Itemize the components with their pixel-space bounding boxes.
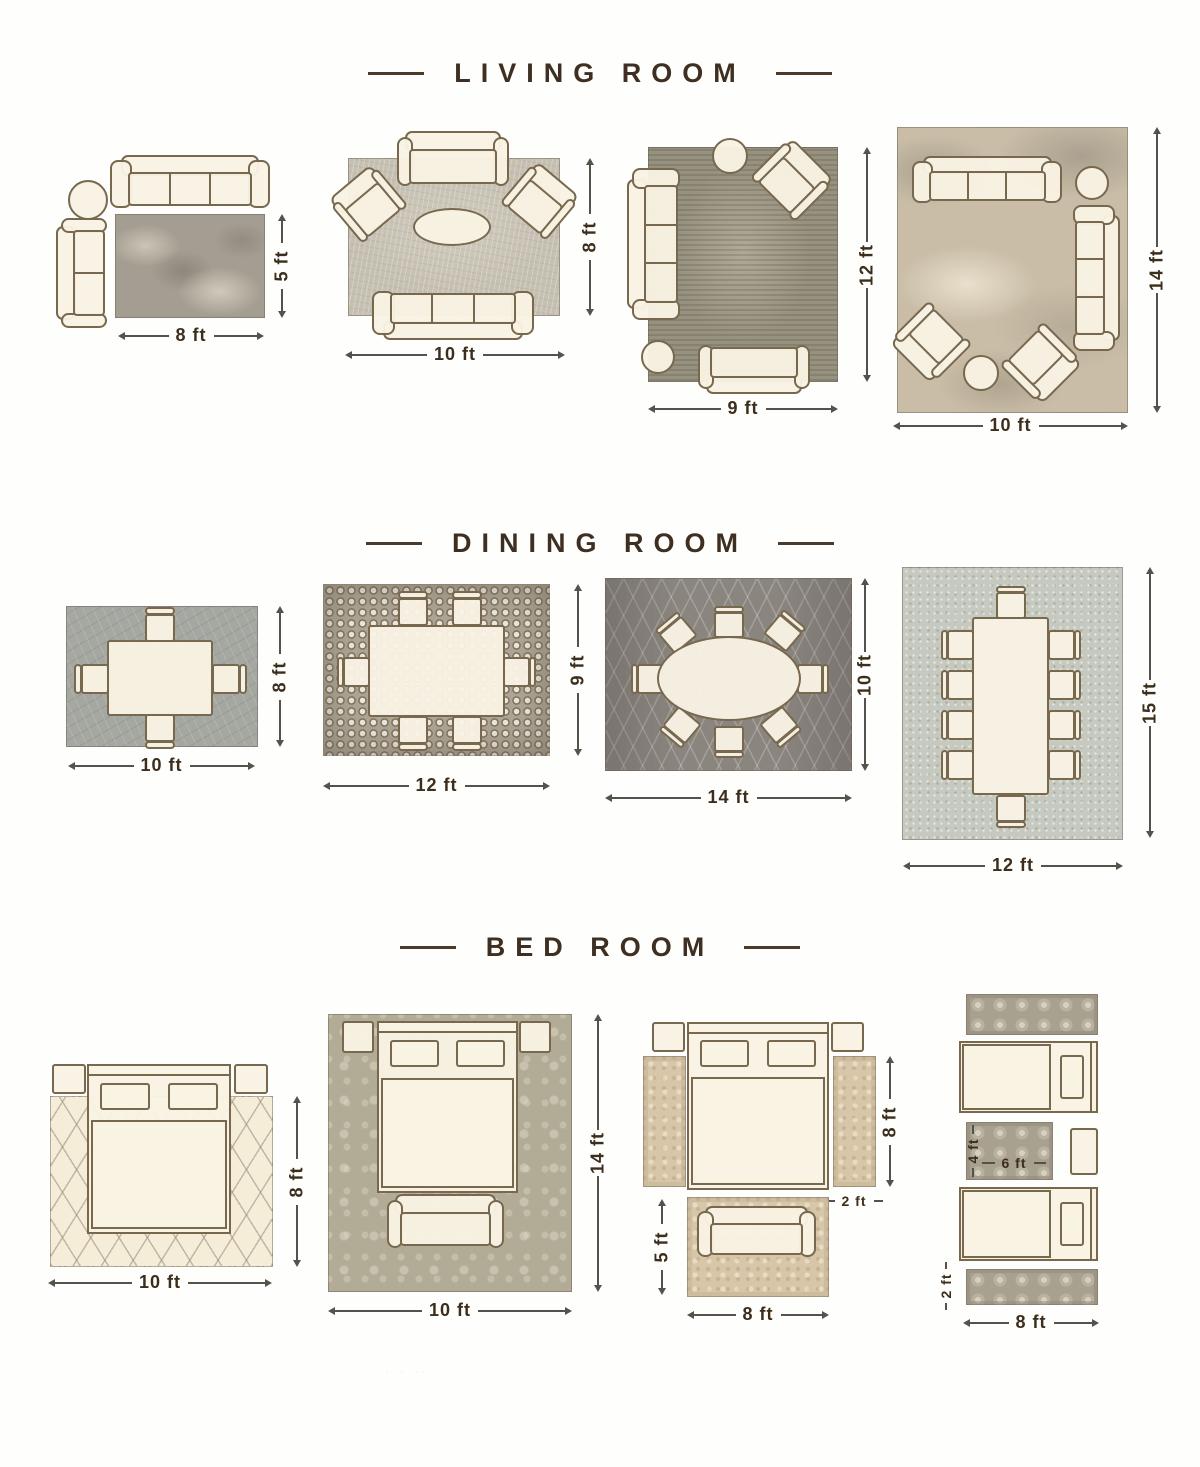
rug-height-dimension: 15 ft xyxy=(1140,567,1160,838)
rug-width-dimension: 8 ft xyxy=(118,325,264,346)
foot-rug-width-dimension: 8 ft xyxy=(687,1304,829,1325)
pillow xyxy=(767,1040,817,1067)
dimension-label: 10 ft xyxy=(134,755,190,776)
bed xyxy=(377,1021,518,1193)
dimension-label: 14 ft xyxy=(588,1132,609,1174)
headboard xyxy=(1090,1041,1098,1113)
arrow-left-icon xyxy=(903,862,910,870)
title-dash-right xyxy=(776,72,832,75)
arrow-left-icon xyxy=(345,351,352,359)
rug-height-dimension: 14 ft xyxy=(1147,127,1167,413)
side-table xyxy=(963,355,999,391)
side-table xyxy=(68,180,108,220)
loveseat xyxy=(698,344,810,394)
sofa xyxy=(912,156,1062,204)
pillow xyxy=(168,1083,218,1110)
bed-cover xyxy=(691,1077,825,1185)
dining-chair xyxy=(947,630,974,660)
dining-chair xyxy=(714,726,744,752)
arrow-right-icon xyxy=(822,1311,829,1319)
dining-chair xyxy=(947,710,974,740)
arrow-left-icon xyxy=(687,1311,694,1319)
dining-chair xyxy=(996,592,1026,619)
nightstand xyxy=(1070,1128,1098,1175)
pillow xyxy=(390,1040,439,1068)
side-table xyxy=(1075,166,1109,200)
mid-rug-width-dimension: 6 ft xyxy=(982,1155,1046,1171)
bed-cover xyxy=(962,1044,1051,1110)
living-layout-10x8: 8 ft 10 ft xyxy=(330,120,605,370)
arrow-up-icon xyxy=(658,1199,666,1206)
sofa-cushions xyxy=(128,172,253,206)
dining-layout-14x10: 10 ft 14 ft xyxy=(595,565,885,810)
bed-cover xyxy=(381,1078,514,1188)
dining-chair xyxy=(343,657,370,687)
arrow-left-icon xyxy=(48,1279,55,1287)
dimension-label: 12 ft xyxy=(985,855,1041,876)
arrow-right-icon xyxy=(558,351,565,359)
dining-chair xyxy=(996,795,1026,822)
sofa-cushions xyxy=(1075,221,1105,335)
arrow-down-icon xyxy=(293,1260,301,1267)
rug-width-dimension: 10 ft xyxy=(68,755,255,776)
headboard xyxy=(87,1064,231,1076)
bed-height-dimension: 8 ft xyxy=(880,1056,900,1187)
runner-height-dimension: 2 ft xyxy=(936,1262,956,1310)
dimension-label: 10 ft xyxy=(855,653,876,695)
arrow-left-icon xyxy=(118,332,125,340)
dimension-label: 14 ft xyxy=(1147,249,1168,291)
title-dash-right xyxy=(778,542,834,545)
arrow-down-icon xyxy=(861,764,869,771)
runner-rug xyxy=(966,1269,1098,1305)
rug-width-dimension: 9 ft xyxy=(648,398,838,419)
arrow-left-icon xyxy=(68,762,75,770)
dimension-label: 10 ft xyxy=(427,344,483,365)
pillow xyxy=(100,1083,150,1110)
rug-height-dimension: 8 ft xyxy=(287,1096,307,1267)
arrow-down-icon xyxy=(574,749,582,756)
rug-size-guide: LIVING ROOM 5 ft 8 ft xyxy=(0,0,1200,1467)
dining-chair xyxy=(1048,630,1075,660)
rug-height-dimension: 8 ft xyxy=(270,606,290,747)
dimension-label: 8 ft xyxy=(580,222,601,253)
twin-bed xyxy=(959,1187,1098,1261)
arrow-up-icon xyxy=(861,578,869,585)
dimension-label: 4 ft xyxy=(965,1139,981,1164)
dimension-label: 8 ft xyxy=(1009,1312,1054,1333)
sofa xyxy=(110,155,270,209)
arrow-down-icon xyxy=(658,1288,666,1295)
arrow-down-icon xyxy=(594,1285,602,1292)
dimension-label: 12 ft xyxy=(857,243,878,285)
living-layout-8x5: 5 ft 8 ft xyxy=(40,140,300,370)
arrow-right-icon xyxy=(831,405,838,413)
nightstand xyxy=(342,1021,374,1053)
dimension-label: 5 ft xyxy=(652,1232,673,1263)
loveseat xyxy=(397,131,509,187)
sofa-cushions xyxy=(644,185,678,304)
section-title-living-room: LIVING ROOM xyxy=(0,58,1200,89)
dining-chair xyxy=(145,614,175,642)
headboard xyxy=(1090,1187,1098,1261)
dining-chair xyxy=(947,670,974,700)
bed-cover xyxy=(91,1120,226,1229)
dining-chair xyxy=(1048,710,1075,740)
arrow-down-icon xyxy=(586,309,594,316)
dining-layout-12x9: 9 ft 12 ft xyxy=(315,575,595,805)
arrow-up-icon xyxy=(574,584,582,591)
watermark-dots: · · ·· xyxy=(385,1366,430,1378)
arrow-up-icon xyxy=(594,1014,602,1021)
bed-layout-10x14: 14 ft 10 ft xyxy=(320,1000,610,1325)
dimension-label: 6 ft xyxy=(995,1155,1034,1171)
arrow-down-icon xyxy=(863,375,871,382)
dimension-label: 10 ft xyxy=(983,415,1039,436)
section-title-bed-room: BED ROOM xyxy=(0,932,1200,963)
arrow-up-icon xyxy=(863,147,871,154)
dimension-label: 8 ft xyxy=(736,1304,781,1325)
arrow-up-icon xyxy=(278,214,286,221)
rug xyxy=(115,214,265,318)
runner-width-dimension: 2 ft xyxy=(825,1193,883,1209)
arrow-left-icon xyxy=(328,1307,335,1315)
arrow-right-icon xyxy=(543,782,550,790)
dining-chair xyxy=(452,598,482,626)
pillow xyxy=(700,1040,750,1067)
dimension-label: 15 ft xyxy=(1140,681,1161,723)
arrow-right-icon xyxy=(1092,1319,1099,1327)
runner-rug xyxy=(643,1056,686,1187)
section-title-text: LIVING ROOM xyxy=(454,58,746,89)
section-title-text: DINING ROOM xyxy=(452,528,748,559)
coffee-table xyxy=(413,208,491,246)
dining-table xyxy=(368,625,505,717)
arrow-right-icon xyxy=(565,1307,572,1315)
rug-width-dimension: 10 ft xyxy=(345,344,565,365)
dining-chair xyxy=(1048,750,1075,780)
arrow-up-icon xyxy=(1153,127,1161,134)
dining-chair xyxy=(947,750,974,780)
runner-rug xyxy=(966,994,1098,1035)
arrow-left-icon xyxy=(893,422,900,430)
sofa xyxy=(1072,205,1120,351)
arrow-up-icon xyxy=(586,158,594,165)
living-layout-9x12: 12 ft 9 ft xyxy=(615,135,885,425)
runner-rug xyxy=(833,1056,876,1187)
loveseat xyxy=(56,218,108,328)
rug-height-dimension: 9 ft xyxy=(568,584,588,756)
arrow-left-icon xyxy=(963,1319,970,1327)
sofa xyxy=(627,168,681,320)
arrow-right-icon xyxy=(248,762,255,770)
title-dash-left xyxy=(366,542,422,545)
arrow-right-icon xyxy=(265,1279,272,1287)
foot-rug-height-dimension: 5 ft xyxy=(652,1199,672,1295)
dining-layout-12x15: 15 ft 12 ft xyxy=(895,555,1165,875)
arrow-right-icon xyxy=(257,332,264,340)
title-dash-right xyxy=(744,946,800,949)
dimension-label: 8 ft xyxy=(270,661,291,692)
dining-table xyxy=(657,636,801,721)
rug-width-dimension: 14 ft xyxy=(605,787,852,808)
arrow-down-icon xyxy=(276,740,284,747)
title-dash-left xyxy=(400,946,456,949)
dimension-label: 12 ft xyxy=(409,775,465,796)
dining-chair xyxy=(398,598,428,626)
twin-bed xyxy=(959,1041,1098,1113)
rug-width-dimension: 10 ft xyxy=(328,1300,572,1321)
dimension-label: 9 ft xyxy=(568,655,589,686)
dimension-label: 14 ft xyxy=(701,787,757,808)
dimension-label: 2 ft xyxy=(938,1274,954,1299)
pillow xyxy=(456,1040,505,1068)
rug-height-dimension: 5 ft xyxy=(272,214,292,318)
pillow xyxy=(1060,1055,1084,1098)
nightstand xyxy=(831,1022,864,1052)
rug-width-dimension: 10 ft xyxy=(893,415,1128,436)
side-table xyxy=(641,340,675,374)
bed-layout-twin-runners: 4 ft 6 ft 2 ft 8 ft xyxy=(930,985,1185,1335)
arrow-right-icon xyxy=(845,794,852,802)
arrow-down-icon xyxy=(1153,406,1161,413)
section-title-text: BED ROOM xyxy=(486,932,715,963)
arrow-down-icon xyxy=(278,311,286,318)
dining-chair xyxy=(212,664,240,694)
dining-table xyxy=(107,640,213,716)
nightstand xyxy=(519,1021,551,1053)
sofa-cushions xyxy=(400,1212,491,1246)
headboard xyxy=(687,1022,829,1034)
rug-height-dimension: 12 ft xyxy=(857,147,877,382)
living-layout-10x14: 14 ft 10 ft xyxy=(885,110,1185,445)
runner-width-dimension: 8 ft xyxy=(963,1312,1099,1333)
arrow-left-icon xyxy=(323,782,330,790)
dining-chair xyxy=(452,716,482,744)
dining-chair xyxy=(145,714,175,742)
rug-width-dimension: 12 ft xyxy=(323,775,550,796)
arrow-left-icon xyxy=(605,794,612,802)
dimension-label: 8 ft xyxy=(880,1106,901,1137)
sofa-cushions xyxy=(929,171,1046,201)
dining-chair xyxy=(503,657,530,687)
bed-layout-10x8: 8 ft 10 ft xyxy=(35,1050,310,1300)
arrow-down-icon xyxy=(886,1180,894,1187)
nightstand xyxy=(234,1064,268,1094)
dining-layout-10x8: 8 ft 10 ft xyxy=(55,595,300,785)
pillow xyxy=(1060,1202,1084,1246)
rug-height-dimension: 10 ft xyxy=(855,578,875,771)
dimension-label: 10 ft xyxy=(132,1272,188,1293)
arrow-up-icon xyxy=(276,606,284,613)
arrow-right-icon xyxy=(1121,422,1128,430)
headboard xyxy=(377,1021,518,1033)
dimension-label: 9 ft xyxy=(721,398,766,419)
bed xyxy=(687,1022,829,1190)
nightstand xyxy=(652,1022,685,1052)
title-dash-left xyxy=(368,72,424,75)
dining-chair xyxy=(714,612,744,638)
sofa-cushions xyxy=(710,347,797,378)
sofa-cushions xyxy=(710,1223,803,1255)
dimension-label: 10 ft xyxy=(422,1300,478,1321)
arrow-left-icon xyxy=(648,405,655,413)
dimension-label: 8 ft xyxy=(169,325,214,346)
sofa xyxy=(372,290,534,340)
sofa-cushions xyxy=(73,230,105,316)
dining-table xyxy=(972,617,1049,795)
arrow-right-icon xyxy=(1116,862,1123,870)
sofa-cushions xyxy=(390,293,516,324)
arrow-up-icon xyxy=(1146,567,1154,574)
dimension-label: 2 ft xyxy=(835,1193,874,1209)
rug-width-dimension: 10 ft xyxy=(48,1272,272,1293)
arrow-down-icon xyxy=(1146,831,1154,838)
dining-chair xyxy=(81,664,109,694)
rug-height-dimension: 14 ft xyxy=(588,1014,608,1292)
sofa-cushions xyxy=(409,149,496,184)
dimension-label: 8 ft xyxy=(287,1166,308,1197)
rug-width-dimension: 12 ft xyxy=(903,855,1123,876)
rug-height-dimension: 8 ft xyxy=(580,158,600,316)
arrow-up-icon xyxy=(293,1096,301,1103)
bed-layout-runners: 8 ft 2 ft 5 ft 8 ft xyxy=(640,1010,905,1325)
bench xyxy=(387,1194,504,1249)
nightstand xyxy=(52,1064,86,1094)
arrow-up-icon xyxy=(886,1056,894,1063)
bench xyxy=(697,1206,816,1258)
dining-chair xyxy=(1048,670,1075,700)
dining-chair xyxy=(398,716,428,744)
bed xyxy=(87,1064,231,1234)
side-table xyxy=(712,138,748,174)
dimension-label: 5 ft xyxy=(272,251,293,282)
bed-cover xyxy=(962,1190,1051,1258)
mid-rug-height-dimension: 4 ft xyxy=(963,1125,983,1177)
